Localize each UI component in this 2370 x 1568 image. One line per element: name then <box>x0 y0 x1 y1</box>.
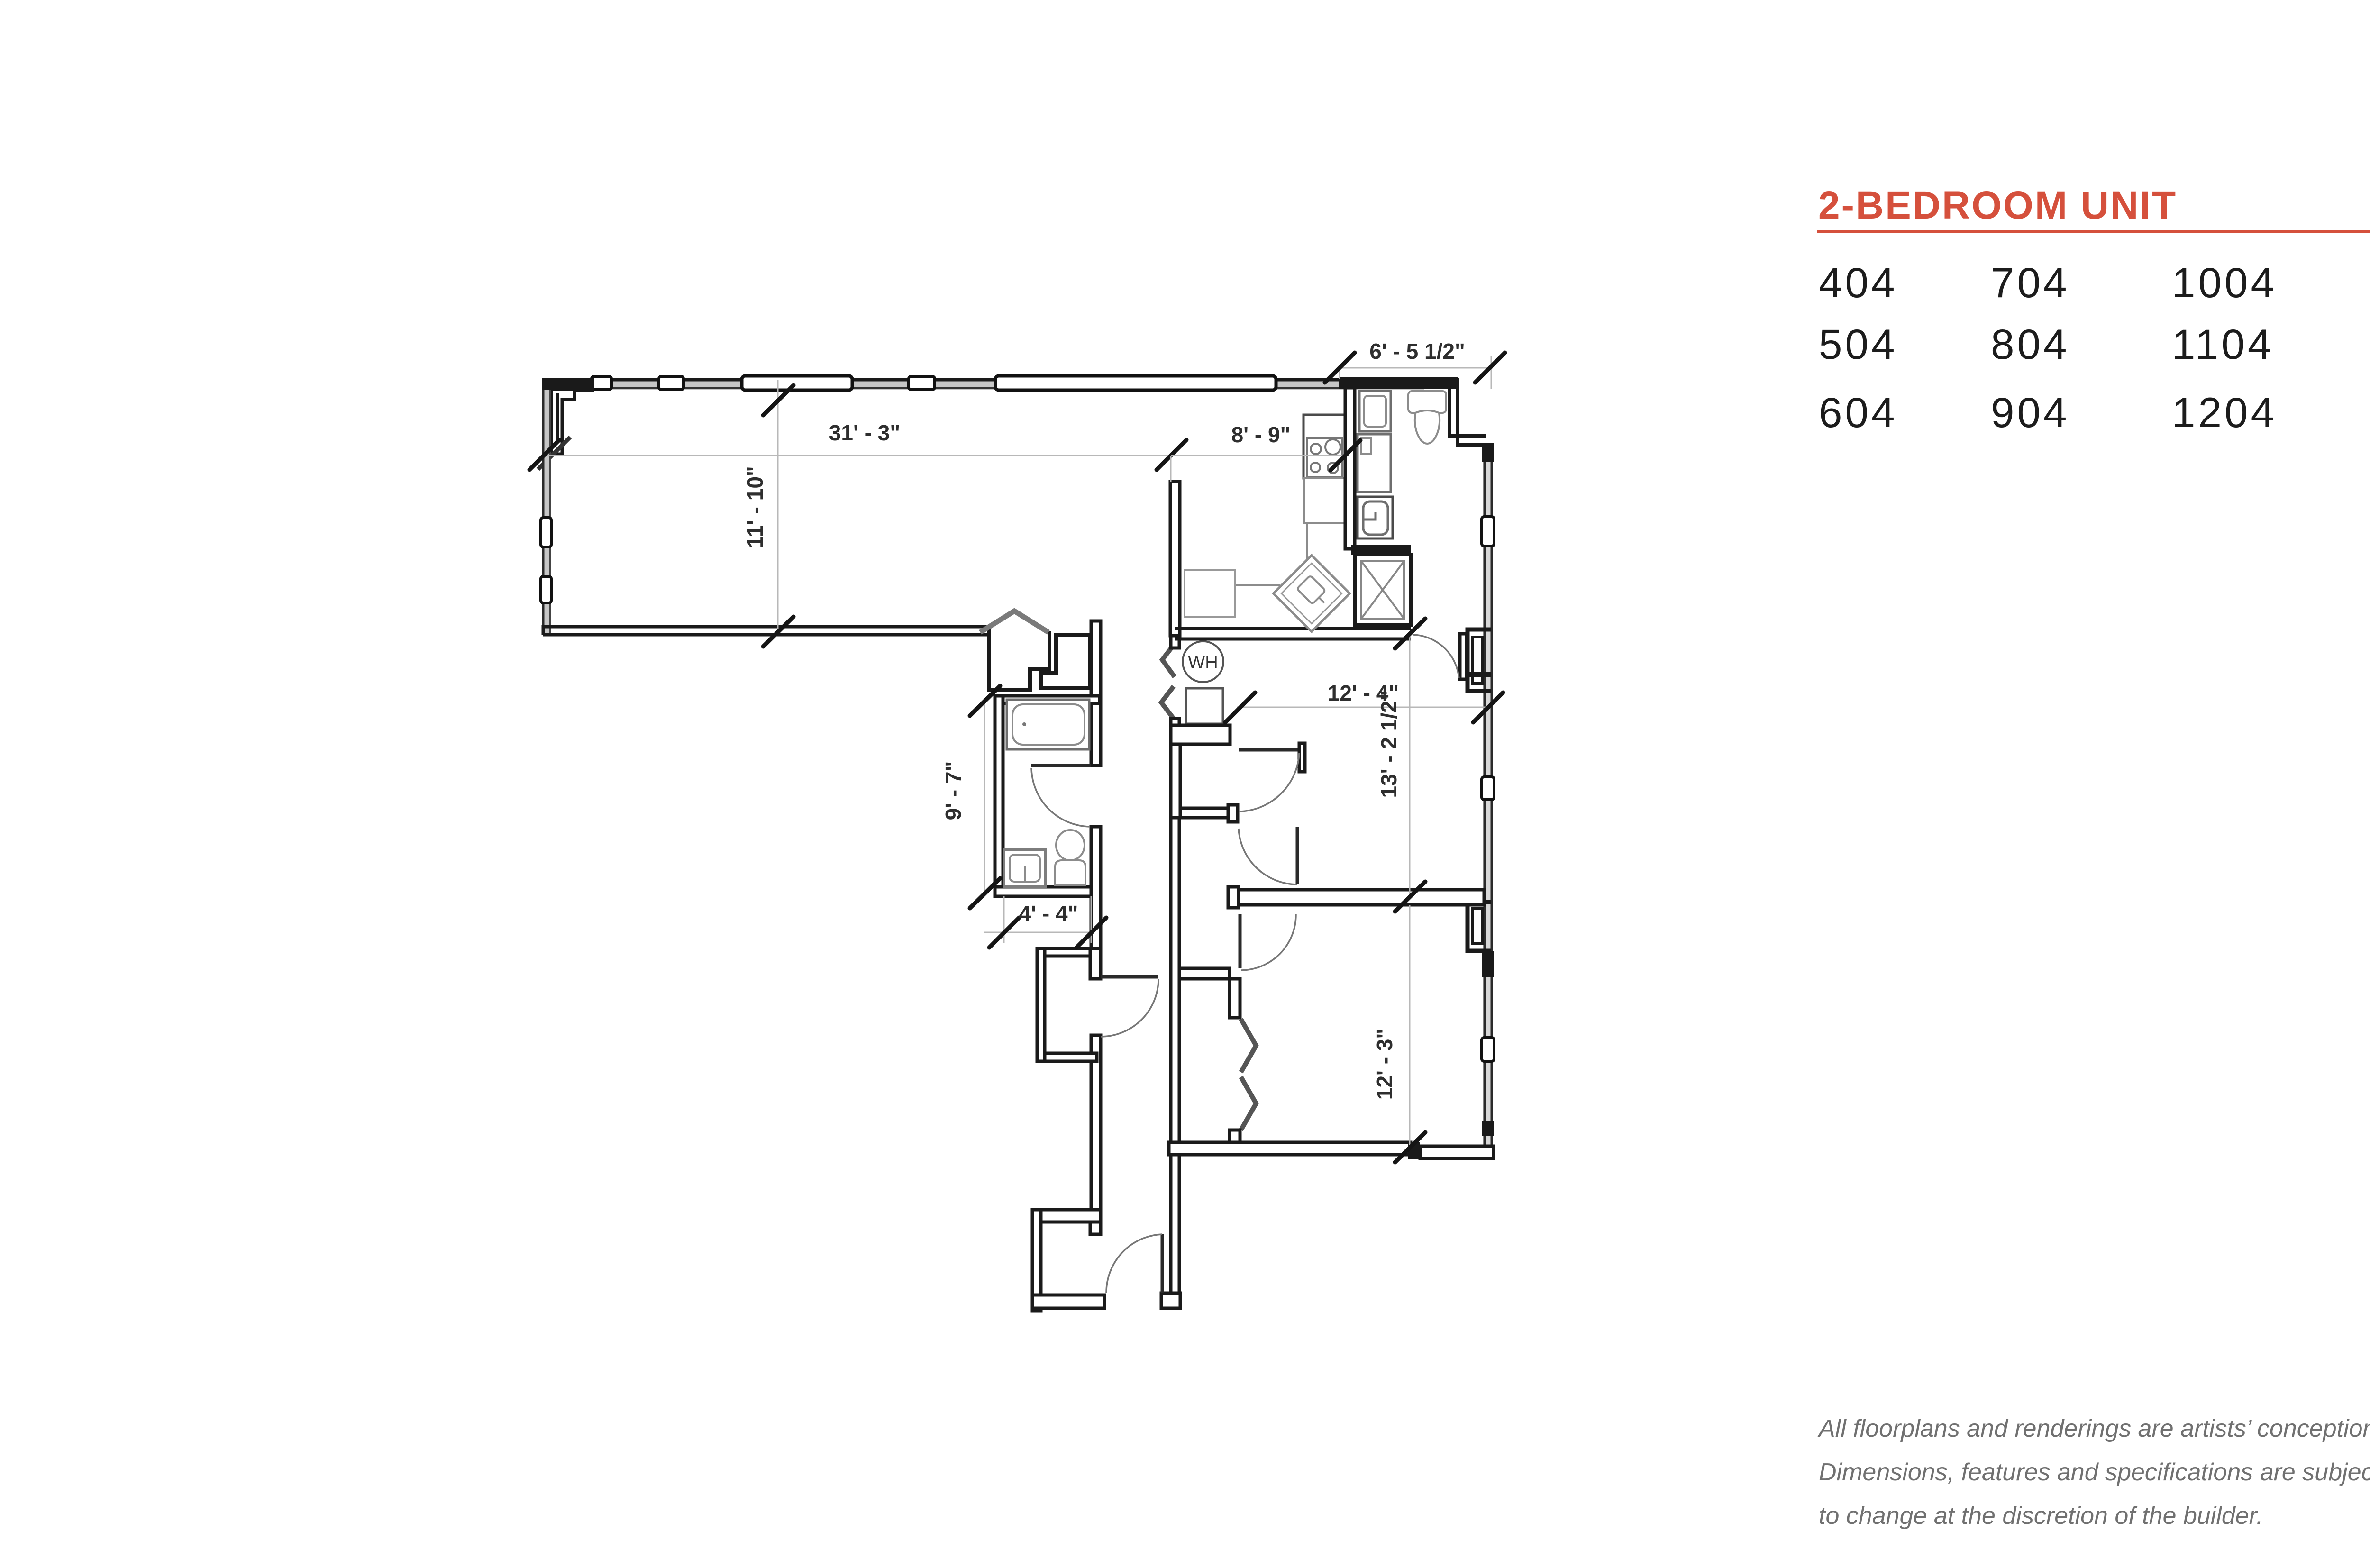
svg-text:6' - 5 1/2": 6' - 5 1/2" <box>1369 339 1465 364</box>
svg-text:12' - 3": 12' - 3" <box>1372 1029 1397 1100</box>
svg-text:to change at the discretion of: to change at the discretion of the build… <box>1819 1502 2263 1530</box>
svg-text:1004: 1004 <box>2172 259 2277 306</box>
svg-text:All floorplans and renderings: All floorplans and renderings are artist… <box>1817 1415 2370 1442</box>
svg-text:9' - 7": 9' - 7" <box>941 761 966 820</box>
svg-text:1104: 1104 <box>2172 320 2274 368</box>
svg-text:904: 904 <box>1991 389 2070 436</box>
svg-text:404: 404 <box>1819 259 1898 306</box>
svg-text:8' - 9": 8' - 9" <box>1231 422 1291 447</box>
svg-text:1204: 1204 <box>2172 389 2277 436</box>
svg-text:504: 504 <box>1819 320 1898 368</box>
svg-text:31' - 3": 31' - 3" <box>829 420 900 445</box>
svg-text:2-BEDROOM UNIT: 2-BEDROOM UNIT <box>1818 184 2177 227</box>
svg-text:704: 704 <box>1991 259 2070 306</box>
svg-text:13' - 2 1/2": 13' - 2 1/2" <box>1376 690 1401 798</box>
svg-text:4' - 4": 4' - 4" <box>1019 901 1078 926</box>
svg-text:11' - 10": 11' - 10" <box>743 466 767 548</box>
svg-text:WH: WH <box>1188 653 1218 673</box>
svg-text:604: 604 <box>1819 389 1898 436</box>
svg-text:804: 804 <box>1991 320 2070 368</box>
svg-text:Dimensions, features and speci: Dimensions, features and specifications … <box>1819 1459 2370 1486</box>
